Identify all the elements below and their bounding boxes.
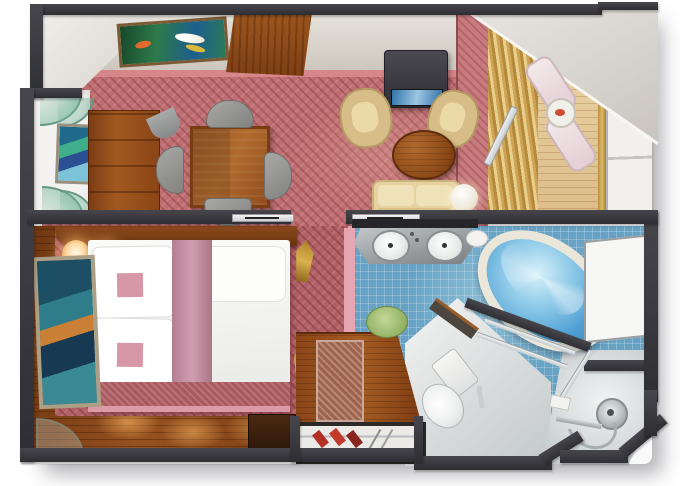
bed-pillow — [91, 317, 174, 390]
foot-pink-trim — [88, 406, 290, 412]
sink-basin — [426, 230, 464, 262]
bedroom-wall-painting — [33, 255, 102, 410]
wall-wardrobe-left — [290, 416, 300, 462]
armchair-seat — [350, 100, 380, 133]
counter-rug — [316, 340, 364, 422]
sliding-door-rail — [232, 214, 294, 222]
balcony-table — [546, 98, 576, 128]
sofa-cushion — [378, 185, 414, 206]
tile-pink-edge — [348, 226, 355, 344]
hanger-icon — [381, 429, 394, 449]
wall-top — [30, 4, 602, 15]
koi-orange-icon — [135, 40, 152, 50]
dining-table — [190, 126, 270, 208]
wall-wardrobe-right — [414, 416, 423, 462]
wall-top-right — [598, 2, 658, 10]
green-bath-mat — [366, 306, 408, 338]
drain-icon — [388, 243, 393, 248]
rolled-towels — [466, 230, 488, 247]
koi-yellow-icon — [185, 43, 206, 54]
red-shoe-icon — [312, 430, 329, 448]
bed — [88, 240, 290, 412]
sink-basin — [372, 230, 410, 262]
food-plate-icon — [555, 109, 565, 116]
hanger-icon — [369, 429, 382, 449]
foot-runner — [88, 382, 290, 406]
floor-plan-stage — [0, 0, 680, 486]
wall-bottom-shower — [560, 450, 628, 463]
bed-pillow — [91, 245, 174, 318]
wall-left-lower — [20, 88, 34, 462]
wall-right-main — [644, 210, 658, 402]
red-shoe-icon — [329, 428, 346, 446]
wall-bottom-main — [20, 448, 422, 462]
vanity-backsplash — [352, 219, 478, 228]
round-coffee-table — [392, 130, 456, 180]
drain-icon — [442, 243, 447, 248]
pink-cushion — [117, 343, 143, 367]
frosted-window — [584, 235, 646, 344]
koi-white-icon — [174, 32, 205, 45]
sofa-cushion — [416, 185, 452, 206]
wall-left-jog — [30, 88, 82, 98]
wall-right-shower — [644, 390, 657, 436]
faucet-icon — [410, 232, 414, 236]
pink-cushion — [117, 273, 143, 297]
entry-door-panel — [226, 12, 312, 76]
armchair-seat — [437, 100, 468, 134]
door-slot — [245, 217, 279, 219]
wall-bottom-toilet — [414, 456, 552, 470]
red-shoe-icon — [346, 430, 363, 448]
faucet-icon — [415, 238, 419, 242]
wall-left-upper — [30, 4, 43, 98]
shower-top-wall — [584, 360, 648, 371]
koi-pond-artwork — [117, 16, 230, 68]
table-lamp — [450, 184, 478, 212]
